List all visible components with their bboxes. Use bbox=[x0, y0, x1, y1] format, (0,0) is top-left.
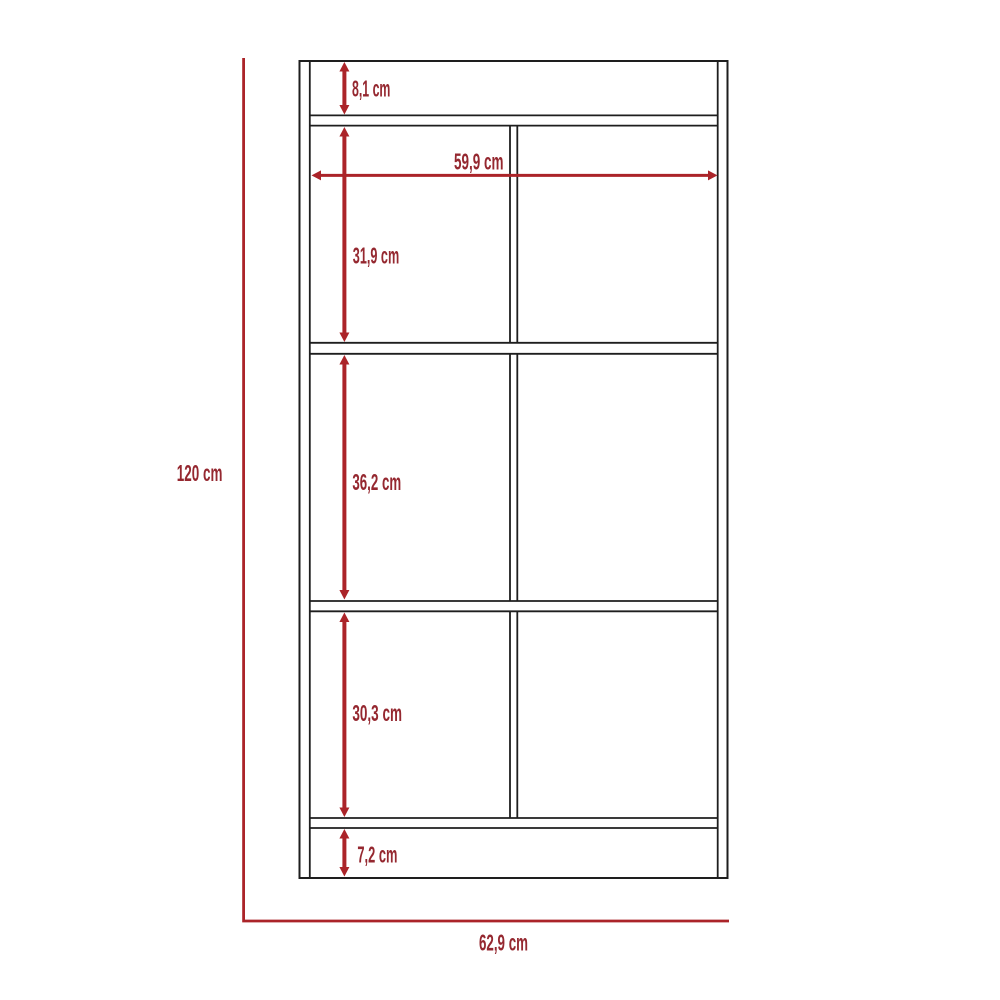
svg-text:62,9 cm: 62,9 cm bbox=[479, 930, 528, 956]
svg-text:59,9 cm: 59,9 cm bbox=[454, 148, 504, 174]
svg-text:120 cm: 120 cm bbox=[177, 460, 223, 486]
svg-text:31,9 cm: 31,9 cm bbox=[353, 243, 399, 269]
svg-text:7,2 cm: 7,2 cm bbox=[357, 841, 397, 867]
svg-text:36,2 cm: 36,2 cm bbox=[352, 469, 401, 495]
svg-text:30,3 cm: 30,3 cm bbox=[352, 700, 402, 726]
svg-text:8,1 cm: 8,1 cm bbox=[352, 76, 390, 102]
